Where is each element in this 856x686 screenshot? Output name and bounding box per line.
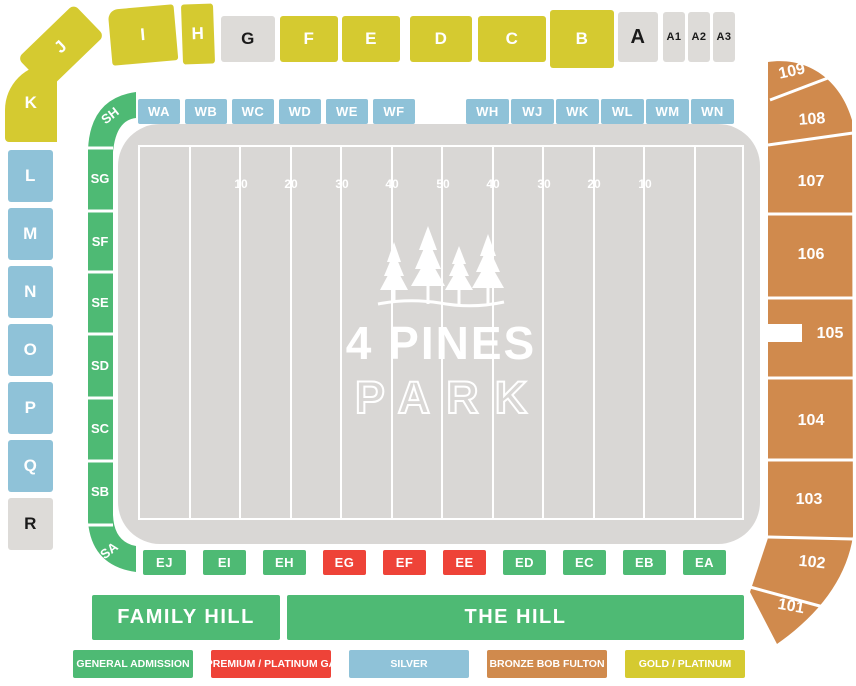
section-label: Q [24,456,38,476]
s-stand-strip[interactable] [85,88,140,578]
hill-label: THE HILL [465,606,567,629]
section-sf[interactable]: SF [85,234,115,249]
yard-number: 10 [228,177,254,191]
section-label: WE [336,104,358,119]
legend: GENERAL ADMISSION PREMIUM / PLATINUM GA … [0,650,856,680]
section-label: J [50,36,71,57]
section-106[interactable]: 106 [789,246,833,264]
section-wn[interactable]: WN [691,99,734,124]
park-logo-subtitle: PARK [138,372,752,424]
legend-label: GOLD / PLATINUM [639,658,732,670]
legend-label: BRONZE BOB FULTON [489,658,604,670]
yard-number: 30 [531,177,557,191]
yard-number: 20 [278,177,304,191]
section-ee[interactable]: EE [443,550,486,575]
section-b[interactable]: B [550,10,614,68]
pine-trees-icon [376,224,506,312]
section-label: I [140,25,147,45]
section-a[interactable]: A [618,12,658,62]
section-label: WB [195,104,218,119]
section-wc[interactable]: WC [232,99,274,124]
section-label: EC [575,555,594,570]
section-p[interactable]: P [8,382,53,434]
legend-gold-platinum: GOLD / PLATINUM [625,650,745,678]
legend-general-admission: GENERAL ADMISSION [73,650,193,678]
section-label: EH [275,555,294,570]
section-label: C [506,29,519,49]
yard-number: 40 [379,177,405,191]
section-label: A2 [691,31,706,43]
legend-premium-platinum: PREMIUM / PLATINUM GA [211,650,331,678]
section-d[interactable]: D [410,16,472,62]
section-label: WM [655,104,679,119]
legend-label: GENERAL ADMISSION [76,658,189,670]
section-wf[interactable]: WF [373,99,415,124]
section-h[interactable]: H [181,3,215,64]
section-label: WL [612,104,633,119]
section-e[interactable]: E [342,16,400,62]
section-eg[interactable]: EG [323,550,366,575]
section-a3[interactable]: A3 [713,12,735,62]
section-r[interactable]: R [8,498,53,550]
section-label: O [24,340,38,360]
section-label: R [24,514,37,534]
section-ed[interactable]: ED [503,550,546,575]
tunnel-notch [768,324,802,342]
section-label: WA [148,104,170,119]
family-hill[interactable]: FAMILY HILL [92,595,280,640]
legend-silver: SILVER [349,650,469,678]
section-103[interactable]: 103 [787,491,831,509]
section-label: ED [515,555,534,570]
section-ef[interactable]: EF [383,550,426,575]
section-c[interactable]: C [478,16,546,62]
legend-bronze-bob-fulton: BRONZE BOB FULTON [487,650,607,678]
section-m[interactable]: M [8,208,53,260]
yard-number: 50 [430,177,456,191]
section-ec[interactable]: EC [563,550,606,575]
section-label: EJ [156,555,173,570]
section-label: EB [635,555,654,570]
section-eb[interactable]: EB [623,550,666,575]
park-logo-title: 4 PINES [138,316,744,370]
yard-number: 40 [480,177,506,191]
yard-number: 30 [329,177,355,191]
section-104[interactable]: 104 [789,412,833,430]
section-label: E [365,29,377,49]
legend-label: SILVER [390,658,427,670]
section-label: WC [242,104,265,119]
yard-number: 20 [581,177,607,191]
section-label: WK [566,104,589,119]
section-wh[interactable]: WH [466,99,509,124]
yard-number: 10 [632,177,658,191]
section-eh[interactable]: EH [263,550,306,575]
section-label: A1 [666,31,681,43]
section-label: N [24,282,37,302]
section-label: M [23,224,38,244]
section-label: G [241,29,255,49]
section-label: EE [455,555,473,570]
section-a1[interactable]: A1 [663,12,685,62]
section-wd[interactable]: WD [279,99,321,124]
section-i[interactable]: I [108,4,179,66]
section-wa[interactable]: WA [138,99,180,124]
section-label: A3 [716,31,731,43]
section-105[interactable]: 105 [808,325,852,343]
section-wm[interactable]: WM [646,99,689,124]
section-label: EG [335,555,355,570]
section-107[interactable]: 107 [789,173,833,191]
section-o[interactable]: O [8,324,53,376]
section-g[interactable]: G [221,16,275,62]
section-label: K [25,93,38,113]
section-label: F [304,29,315,49]
section-se[interactable]: SE [85,295,115,310]
section-wk[interactable]: WK [556,99,599,124]
section-wb[interactable]: WB [185,99,227,124]
section-sg[interactable]: SG [85,171,115,186]
section-108[interactable]: 108 [789,109,834,130]
stadium-map: 10 20 30 40 50 40 30 20 10 4 PINES PARK … [0,0,856,686]
section-label: WJ [522,104,543,119]
section-label: WN [701,104,724,119]
section-label: B [576,29,589,49]
section-label: L [25,166,36,186]
section-ea[interactable]: EA [683,550,726,575]
section-label: WD [289,104,312,119]
the-hill[interactable]: THE HILL [287,595,744,640]
section-label: D [435,29,448,49]
section-label: P [25,398,37,418]
section-a2[interactable]: A2 [688,12,710,62]
section-f[interactable]: F [280,16,338,62]
section-label: EA [695,555,714,570]
hill-label: FAMILY HILL [117,606,255,629]
section-l[interactable]: L [8,150,53,202]
section-label: WH [476,104,499,119]
section-sb[interactable]: SB [85,484,115,499]
section-label: EF [396,555,414,570]
section-label: H [191,24,204,44]
section-we[interactable]: WE [326,99,368,124]
section-sc[interactable]: SC [85,421,115,436]
section-sd[interactable]: SD [85,358,115,373]
legend-label: PREMIUM / PLATINUM GA [206,658,336,670]
section-label: WF [383,104,404,119]
section-label: A [631,26,646,49]
section-ei[interactable]: EI [203,550,246,575]
section-wj[interactable]: WJ [511,99,554,124]
section-ej[interactable]: EJ [143,550,186,575]
section-label: EI [218,555,231,570]
section-wl[interactable]: WL [601,99,644,124]
section-n[interactable]: N [8,266,53,318]
section-q[interactable]: Q [8,440,53,492]
